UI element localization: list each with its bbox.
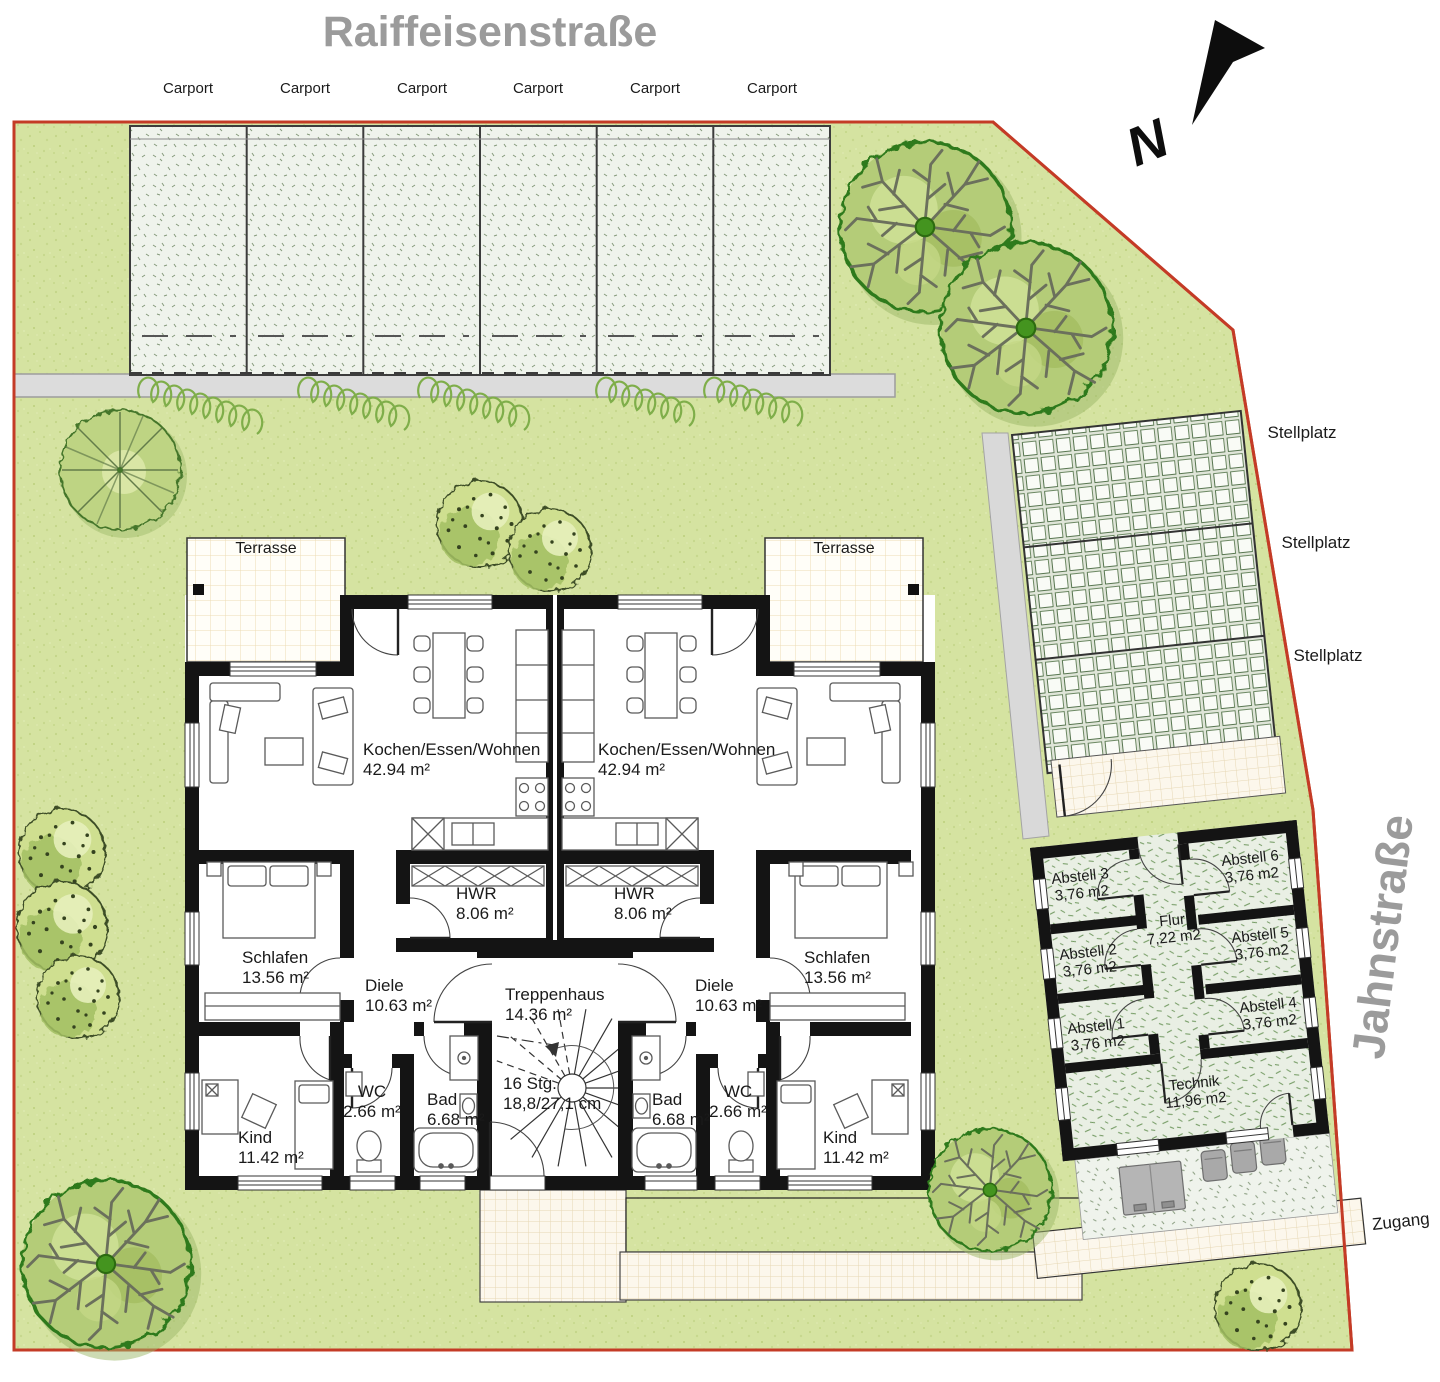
carport-label-2: Carport <box>260 80 350 97</box>
room-kind-right: Kind11.42 m² <box>823 1128 889 1167</box>
room-schlafen-left: Schlafen13.56 m² <box>242 948 309 987</box>
room-diele-left: Diele10.63 m² <box>365 976 432 1015</box>
room-treppenhaus: Treppenhaus14.36 m² <box>505 985 605 1024</box>
carport-label-3: Carport <box>377 80 467 97</box>
terrace-label-left: Terrasse <box>216 540 316 559</box>
room-bad-left: Bad6.68 m² <box>427 1090 485 1129</box>
carport-label-4: Carport <box>493 80 583 97</box>
room-living-left: Kochen/Essen/Wohnen42.94 m² <box>363 740 540 779</box>
bush <box>509 509 591 591</box>
carport-label-6: Carport <box>727 80 817 97</box>
carport-area <box>130 126 830 375</box>
carport-label-1: Carport <box>143 80 233 97</box>
site-plan: Raiffeisenstraße Carport Carport Carport… <box>0 0 1440 1382</box>
room-living-right: Kochen/Essen/Wohnen42.94 m² <box>598 740 775 779</box>
stellplatz-label-1: Stellplatz <box>1252 423 1352 443</box>
site-plan-drawing <box>0 0 1440 1382</box>
terrace-label-right: Terrasse <box>794 540 894 559</box>
room-hwr-left: HWR8.06 m² <box>456 884 514 923</box>
room-schlafen-right: Schlafen13.56 m² <box>804 948 871 987</box>
stellplatz-label-3: Stellplatz <box>1278 646 1378 666</box>
room-kind-left: Kind11.42 m² <box>238 1128 304 1167</box>
room-wc-right: WC2.66 m² <box>698 1082 778 1121</box>
stellplatz-label-2: Stellplatz <box>1266 533 1366 553</box>
north-arrow-icon <box>1192 20 1265 125</box>
room-diele-right: Diele10.63 m² <box>695 976 762 1015</box>
stellplatz-parking <box>1012 411 1276 773</box>
room-wc-left: WC2.66 m² <box>332 1082 412 1121</box>
carport-label-5: Carport <box>610 80 700 97</box>
bush <box>37 956 119 1038</box>
room-hwr-right: HWR8.06 m² <box>614 884 672 923</box>
bush <box>1215 1264 1301 1350</box>
street-name-top: Raiffeisenstraße <box>290 8 690 58</box>
stairs-note: 16 Stg.18,8/27,1 cm <box>503 1074 601 1113</box>
room-bad-right: Bad6.68 m² <box>652 1090 710 1129</box>
